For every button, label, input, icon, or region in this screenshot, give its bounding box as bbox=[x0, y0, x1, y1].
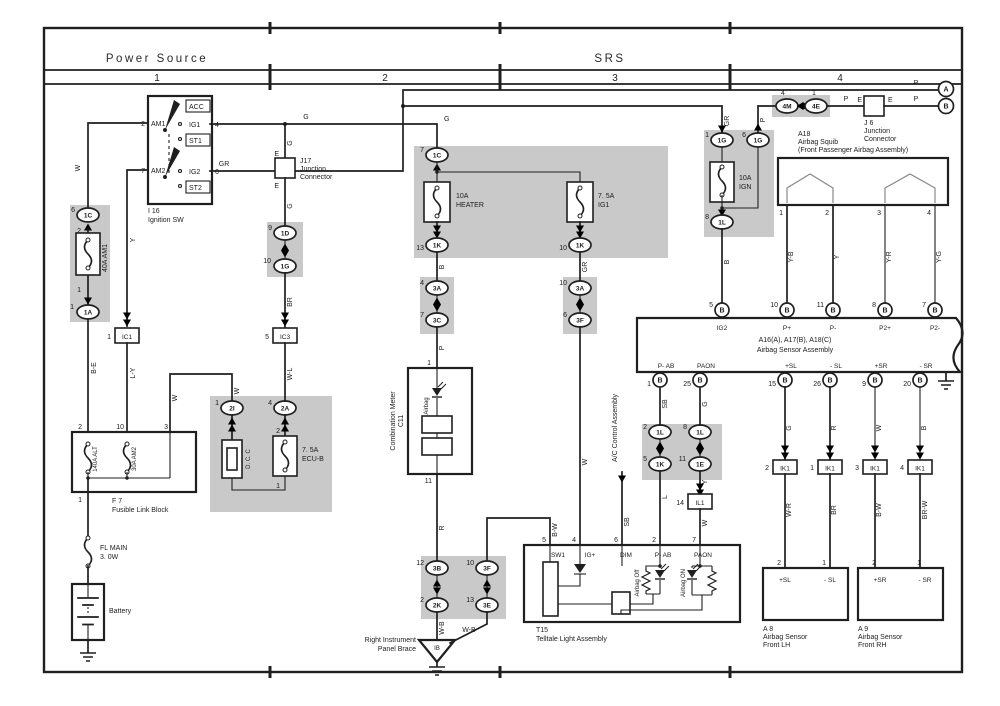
j6-junction: Junction bbox=[864, 128, 890, 135]
junction-ic3-id: IC3 bbox=[280, 334, 291, 341]
ignition-terminal-st1: ST1 bbox=[189, 138, 202, 145]
am2-feed-wire: Y bbox=[127, 170, 148, 326]
fuse-140a-alt: 140A ALT bbox=[93, 446, 99, 472]
ground-label-line2: Panel Brace bbox=[378, 646, 416, 653]
connector-3f6-id: 3F bbox=[576, 318, 584, 325]
j17-e-top: E bbox=[274, 151, 279, 158]
telltale-pin-5: 5 bbox=[542, 537, 546, 544]
combination-meter: C11 Combination Meter 1 Airbag 11 R bbox=[390, 360, 472, 561]
connector-1k13-pin: 13 bbox=[416, 245, 424, 252]
offpage-circle-b: B bbox=[943, 104, 948, 111]
connector-1l8b-pin: 8 bbox=[683, 424, 687, 431]
ignition-pin-7: 7 bbox=[141, 168, 145, 175]
j6-connector: Connector bbox=[864, 136, 897, 143]
connector-2i-pin: 1 bbox=[215, 400, 219, 407]
wire-color-b-ig2: B bbox=[724, 259, 731, 264]
wire-color-yg: Y-G bbox=[936, 251, 943, 263]
connector-4m-id: 4M bbox=[782, 104, 791, 111]
lh-id: A 8 bbox=[763, 626, 773, 633]
flb-pin-2: 2 bbox=[78, 424, 82, 431]
connector-1g1-pin: 1 bbox=[705, 132, 709, 139]
flb-id: F 7 bbox=[112, 498, 122, 505]
connector-1g6-id: 1G bbox=[754, 138, 763, 145]
sensor-pin-1: 1 bbox=[647, 381, 651, 388]
pin-b: B bbox=[782, 378, 787, 385]
ignition-pin-6: 6 bbox=[215, 169, 219, 176]
connector-1c-pin: 6 bbox=[71, 207, 75, 214]
sensor-ig2: IG2 bbox=[717, 325, 728, 332]
connector-2i-id: 2I bbox=[229, 406, 235, 413]
ignition-id: I 16 bbox=[148, 208, 160, 215]
pin-b: B bbox=[882, 308, 887, 315]
airbag-sensor-assembly: A16(A), A17(B), A18(C) Airbag Sensor Ass… bbox=[637, 302, 963, 389]
lh-name2: Front LH bbox=[763, 642, 790, 649]
wire-color-y-squib: Y bbox=[834, 254, 841, 259]
connector-1k10-id: 1K bbox=[576, 243, 585, 250]
lh-pin-1: 1 bbox=[822, 560, 826, 567]
telltale-pin-4: 4 bbox=[572, 537, 576, 544]
section-1: 1 bbox=[154, 73, 160, 84]
telltale-name: Telltale Light Assembly bbox=[536, 636, 607, 643]
connector-pair-3b-2k: 3B 12 2K 2 W-B bbox=[416, 560, 448, 640]
flb-pin-3: 3 bbox=[164, 424, 168, 431]
connector-1l2-id: 1L bbox=[656, 430, 664, 437]
sensor-pin-26: 26 bbox=[813, 381, 821, 388]
telltale-pin-6: 6 bbox=[614, 537, 618, 544]
wire-color-g2: G bbox=[444, 116, 449, 123]
junction-ik1-d-id: IK1 bbox=[915, 466, 925, 473]
telltale-pin-2: 2 bbox=[652, 537, 656, 544]
sensor-p2-plus: P2+ bbox=[879, 325, 891, 332]
wire-color-r-sl: R bbox=[831, 425, 838, 430]
wire-color-gr1: GR bbox=[219, 161, 230, 168]
wire-color-w-left: W bbox=[172, 394, 179, 401]
meter-pin-11: 11 bbox=[425, 478, 432, 485]
telltale-airbag-on-label: Airbag ON bbox=[681, 569, 687, 597]
j17-connector: Connector bbox=[300, 174, 333, 181]
sensor-p-minus: P- bbox=[830, 325, 837, 332]
connector-4e-id: 4E bbox=[812, 104, 821, 111]
battery-label: Battery bbox=[109, 608, 132, 615]
section-4: 4 bbox=[837, 73, 843, 84]
sensor-paon: PAON bbox=[697, 363, 715, 370]
sensor-pin-25: 25 bbox=[683, 381, 691, 388]
ignition-terminal-ig1: IG1 bbox=[189, 122, 200, 129]
j6-e-right: E bbox=[888, 97, 893, 104]
ignition-contact-wedges bbox=[163, 100, 182, 188]
wire-color-b-sr: B bbox=[921, 425, 928, 430]
header-power-source: Power Source bbox=[106, 53, 208, 65]
sensor-pin-9: 9 bbox=[862, 381, 866, 388]
connector-1l8b-id: 1L bbox=[696, 430, 704, 437]
j17-junction: Junction bbox=[300, 166, 326, 173]
pin-b: B bbox=[657, 378, 662, 385]
ignition-name: Ignition SW bbox=[148, 217, 184, 224]
connector-3b12-id: 3B bbox=[433, 566, 442, 573]
wire-color-p-j6-right: P bbox=[914, 96, 919, 103]
rh-sr-minus: - SR bbox=[919, 577, 932, 584]
wire-color-wr: W-R bbox=[786, 503, 793, 517]
sensor-pin-11: 11 bbox=[817, 302, 824, 309]
lh-sl-plus: +SL bbox=[779, 577, 791, 584]
connector-3a4-pin: 4 bbox=[420, 280, 424, 287]
fuse-ig1-name: IG1 bbox=[598, 202, 609, 209]
j6-id: J 6 bbox=[864, 120, 873, 127]
fuse-ecub-name: ECU-B bbox=[302, 456, 324, 463]
lh-name1: Airbag Sensor bbox=[763, 634, 808, 641]
junction-ik1-a-pin: 2 bbox=[765, 465, 769, 472]
ac-control-assembly-feed: A/C Control Assembly SB bbox=[612, 393, 631, 545]
wire-color-p-j6-left: P bbox=[844, 96, 849, 103]
ignition-pin-2: 2 bbox=[141, 121, 145, 128]
j17-e-bottom: E bbox=[274, 183, 279, 190]
wire-color-sb-ac: SB bbox=[624, 517, 631, 527]
wire-color-g-paon: G bbox=[702, 401, 709, 406]
meter-name: Combination Meter bbox=[390, 391, 397, 451]
wire-color-w-igplus: W bbox=[582, 458, 589, 465]
fl-main-label: FL MAIN bbox=[100, 545, 127, 552]
fuse-heater-name: HEATER bbox=[456, 202, 484, 209]
wire-color-g-j17-top: G bbox=[287, 140, 294, 145]
wire-color-gr-ign: GR bbox=[724, 116, 731, 127]
fl-main-rating: 3. 0W bbox=[100, 554, 119, 561]
connector-1k13-id: 1K bbox=[433, 243, 442, 250]
wire-color-b-htr: B bbox=[439, 264, 446, 269]
sensor-p-plus: P+ bbox=[783, 325, 791, 332]
squib-id: A18 bbox=[798, 131, 811, 138]
rh-pin-1: 1 bbox=[917, 560, 921, 567]
wire-color-brw: BR-W bbox=[922, 500, 929, 519]
rh-name2: Front RH bbox=[858, 642, 886, 649]
wire-color-gr-ig1: GR bbox=[582, 262, 589, 273]
junction-ik1-c-pin: 3 bbox=[855, 465, 859, 472]
pin-b: B bbox=[830, 308, 835, 315]
ignition-terminal-am1: AM1 bbox=[151, 121, 166, 128]
pin-b: B bbox=[917, 378, 922, 385]
junction-ic1: IC1 1 L-Y bbox=[107, 313, 139, 433]
squib-pin-3: 3 bbox=[877, 210, 881, 217]
wire-color-l-pab: L bbox=[662, 495, 669, 499]
ground-ib-id: IB bbox=[434, 646, 440, 652]
connector-1c-id: 1C bbox=[84, 213, 93, 220]
wire-color-g1: G bbox=[303, 114, 308, 121]
wire-color-wb-horizontal: W-B bbox=[462, 627, 476, 634]
wire-color-w-right: W bbox=[234, 387, 241, 394]
wire-color-w-am1: W bbox=[75, 164, 82, 171]
junction-ic1-pin: 1 bbox=[107, 334, 111, 341]
wire-color-yb: Y-B bbox=[788, 251, 795, 262]
connector-2a-pin: 4 bbox=[268, 400, 272, 407]
sensor-pin-10: 10 bbox=[770, 302, 778, 309]
squib-pin-1: 1 bbox=[779, 210, 783, 217]
wire-color-wl: W-L bbox=[287, 368, 294, 381]
junction-ic1-id: IC1 bbox=[122, 334, 133, 341]
connector-2a-id: 2A bbox=[281, 406, 290, 413]
fuse-ecub-rating: 7. 5A bbox=[302, 447, 319, 454]
telltale-airbag-off-label: Airbag Off bbox=[635, 569, 641, 596]
offpage-circle-a: A bbox=[943, 87, 948, 94]
telltale-igplus: IG+ bbox=[585, 552, 596, 559]
fuse-heater-rating: 10A bbox=[456, 193, 469, 200]
wire-color-p-meter: P bbox=[439, 345, 446, 350]
am1-feed-wire: W bbox=[75, 123, 148, 208]
sensor-p2-minus: P2- bbox=[930, 325, 940, 332]
telltale-pab: P- AB bbox=[655, 552, 672, 559]
j6-e-left: E bbox=[857, 97, 862, 104]
wire-color-w-paon: W bbox=[702, 519, 709, 526]
ignition-switch: 2 AM1 7 AM2 ACC IG1 4 ST1 IG2 6 ST2 I 16… bbox=[141, 96, 219, 224]
connector-1d-id: 1D bbox=[281, 231, 290, 238]
sensor-pin-7: 7 bbox=[922, 302, 926, 309]
fuse-ign-rating: 10A bbox=[739, 175, 752, 182]
wire-color-wb-vertical: W-B bbox=[439, 621, 446, 635]
connector-1k5-pin: 5 bbox=[643, 456, 647, 463]
flb-pin-1: 1 bbox=[78, 497, 82, 504]
fuse-ig1-rating: 7. 5A bbox=[598, 193, 615, 200]
wire-color-bw-sr: B-W bbox=[876, 503, 883, 517]
junction-ik1-c-id: IK1 bbox=[870, 466, 880, 473]
sensor-pin-20: 20 bbox=[903, 381, 911, 388]
telltale-sw1: SW1 bbox=[551, 552, 565, 559]
fuse-ign-name: IGN bbox=[739, 184, 751, 191]
airbag-squib: A18 Airbag Squib (Front Passenger Airbag… bbox=[778, 131, 948, 303]
connector-4e-pin: 1 bbox=[812, 90, 816, 97]
telltale-light-assembly: 5 4 6 2 7 SW1 IG+ DIM P- AB PAON Airbag … bbox=[524, 537, 740, 643]
telltale-pin-7: 7 bbox=[692, 537, 696, 544]
pin-b: B bbox=[932, 308, 937, 315]
meter-airbag-lamp-label: Airbag bbox=[424, 397, 430, 414]
connector-1d-pin: 9 bbox=[268, 225, 272, 232]
ground-right-instrument-panel-brace: IB Right Instrument Panel Brace bbox=[365, 637, 455, 675]
connector-3e13-id: 3E bbox=[483, 603, 492, 610]
wire-color-p-ign: P bbox=[760, 117, 767, 122]
sensor-sr-plus: +SR bbox=[875, 363, 888, 370]
sensor-assembly-name: Airbag Sensor Assembly bbox=[757, 347, 834, 354]
connector-3f6-pin: 6 bbox=[563, 312, 567, 319]
connector-3c7-id: 3C bbox=[433, 318, 442, 325]
rh-id: A 9 bbox=[858, 626, 868, 633]
squib-name: Airbag Squib bbox=[798, 139, 838, 146]
sensor-pin-15: 15 bbox=[768, 381, 776, 388]
ignition-terminal-st2: ST2 bbox=[189, 185, 202, 192]
section-2: 2 bbox=[382, 73, 388, 84]
fusible-link-block: 2 10 3 140A ALT 30A AM2 1 F 7 Fusible Li… bbox=[72, 424, 196, 538]
wire-color-br-sl: BR bbox=[831, 505, 838, 515]
junction-ik1-b-pin: 1 bbox=[810, 465, 814, 472]
connector-3a10-id: 3A bbox=[576, 286, 585, 293]
srs-wiring-diagram-page: Power Source SRS 1 2 3 4 2 AM1 7 AM2 ACC… bbox=[0, 0, 1000, 706]
connector-1k5-id: 1K bbox=[656, 462, 665, 469]
flb-pin-10: 10 bbox=[116, 424, 124, 431]
connector-1c7-pin: 7 bbox=[420, 147, 424, 154]
connector-3a10-pin: 10 bbox=[559, 280, 567, 287]
rh-pin-2: 2 bbox=[872, 560, 876, 567]
wire-color-y-am2: Y bbox=[130, 237, 137, 242]
dcc-label: D. C. C bbox=[246, 449, 252, 469]
sensor-pab: P- AB bbox=[658, 363, 675, 370]
squib-pin-2: 2 bbox=[825, 210, 829, 217]
pin-b: B bbox=[872, 378, 877, 385]
connector-3e13-pin: 13 bbox=[466, 597, 474, 604]
fuse-am1-rating: 40A AM1 bbox=[102, 244, 109, 272]
wire-color-r-meter: R bbox=[439, 525, 446, 530]
connector-1g10-id: 1G bbox=[281, 264, 290, 271]
lh-sl-minus: - SL bbox=[824, 577, 836, 584]
front-sensor-chains: G R W B IK1 2 IK1 1 IK1 3 IK1 4 W-R BR B… bbox=[765, 387, 932, 568]
wire-color-sb-pab: SB bbox=[662, 399, 669, 409]
airbag-sensor-front-rh: 2 1 +SR - SR A 9 Airbag Sensor Front RH bbox=[858, 560, 943, 649]
connector-3a4-id: 3A bbox=[433, 286, 442, 293]
wire-color-bw-sw1: B-W bbox=[552, 523, 559, 537]
connector-3f10-pin: 10 bbox=[466, 560, 474, 567]
sensor-sl-minus: - SL bbox=[830, 363, 842, 370]
connector-1l2-pin: 2 bbox=[643, 424, 647, 431]
connector-1e11-id: 1E bbox=[696, 462, 705, 469]
sensor-sr-minus: - SR bbox=[920, 363, 933, 370]
header-srs: SRS bbox=[594, 53, 625, 65]
ignition-terminal-ig2: IG2 bbox=[189, 169, 200, 176]
connector-3c7-pin: 7 bbox=[420, 312, 424, 319]
ig1-g-wire: G G bbox=[210, 114, 449, 148]
meter-id: C11 bbox=[398, 415, 405, 427]
wire-color-g-sl: G bbox=[786, 425, 793, 430]
pin-b: B bbox=[719, 308, 724, 315]
connector-1k10-pin: 10 bbox=[559, 245, 567, 252]
fuse-am1-pin1: 1 bbox=[77, 287, 81, 294]
ground-label-line1: Right Instrument bbox=[365, 637, 416, 644]
j17-id: J17 bbox=[300, 158, 311, 165]
fuse-ecub-pin2: 2 bbox=[276, 428, 280, 435]
junction-ik1-b-id: IK1 bbox=[825, 466, 835, 473]
fuse-30a-am2: 30A AM2 bbox=[132, 446, 138, 471]
fl-main-fusible-link: FL MAIN 3. 0W bbox=[85, 536, 128, 584]
connector-1c7-id: 1C bbox=[433, 153, 442, 160]
connector-1a-id: 1A bbox=[84, 310, 93, 317]
connector-1g10-pin: 10 bbox=[263, 258, 271, 265]
junction-ik1-d-pin: 4 bbox=[900, 465, 904, 472]
section-3: 3 bbox=[612, 73, 618, 84]
sensor-sl-plus: +SL bbox=[785, 363, 797, 370]
junction-il1-pin: 14 bbox=[676, 500, 684, 507]
connector-4m-pin: 4 bbox=[781, 90, 785, 97]
telltale-id: T15 bbox=[536, 627, 548, 634]
lh-pin-2: 2 bbox=[777, 560, 781, 567]
pin-b: B bbox=[827, 378, 832, 385]
wire-color-br: BR bbox=[287, 297, 294, 307]
fuse-ecub-pin1: 1 bbox=[276, 483, 280, 490]
connector-1l8-pin: 8 bbox=[705, 214, 709, 221]
ignition-terminal-acc: ACC bbox=[189, 104, 204, 111]
battery: Battery bbox=[72, 584, 132, 661]
rh-name1: Airbag Sensor bbox=[858, 634, 903, 641]
pin-b: B bbox=[697, 378, 702, 385]
connector-3f10-id: 3F bbox=[483, 566, 491, 573]
rh-sr-plus: +SR bbox=[874, 577, 887, 584]
sensor-pin-5: 5 bbox=[709, 302, 713, 309]
flb-name: Fusible Link Block bbox=[112, 507, 169, 514]
sensor-bottom-pins: P- AB PAON +SL - SL +SR - SR B 1 B 25 B … bbox=[647, 363, 933, 388]
squib-assembly: (Front Passenger Airbag Assembly) bbox=[798, 147, 908, 154]
wire-color-p-a: P bbox=[914, 80, 919, 87]
connector-1g1-id: 1G bbox=[718, 138, 727, 145]
wire-color-g-j17-bottom: G bbox=[287, 203, 294, 208]
ac-control-assembly-label: A/C Control Assembly bbox=[612, 393, 619, 462]
connector-2k2-id: 2K bbox=[433, 603, 442, 610]
connector-3b12-pin: 12 bbox=[416, 560, 424, 567]
meter-pin-1: 1 bbox=[427, 360, 431, 367]
ignition-pin-4: 4 bbox=[215, 122, 219, 129]
junction-ik1-a-id: IK1 bbox=[780, 466, 790, 473]
connector-1a-pin: 1 bbox=[70, 304, 74, 311]
squib-pin-4: 4 bbox=[927, 210, 931, 217]
wire-color-ly: L-Y bbox=[130, 367, 137, 378]
ignition-terminal-am2: AM2 bbox=[151, 168, 166, 175]
telltale-paon: PAON bbox=[694, 552, 712, 559]
junction-ic3-pin: 5 bbox=[265, 334, 269, 341]
sensor-pin-8: 8 bbox=[872, 302, 876, 309]
wire-color-w-sr: W bbox=[876, 424, 883, 431]
connector-1e11-pin: 11 bbox=[679, 456, 686, 463]
connector-2k2-pin: 2 bbox=[420, 597, 424, 604]
sensor-assembly-id: A16(A), A17(B), A18(C) bbox=[759, 337, 832, 344]
wire-color-yr: Y-R bbox=[886, 251, 893, 262]
wiring-diagram-canvas: Power Source SRS 1 2 3 4 2 AM1 7 AM2 ACC… bbox=[0, 0, 1000, 706]
connector-1l8-id: 1L bbox=[718, 220, 726, 227]
airbag-sensor-front-lh: 2 1 +SL - SL A 8 Airbag Sensor Front LH bbox=[763, 560, 848, 649]
junction-il1-id: IL1 bbox=[695, 500, 704, 507]
connector-1g6-pin: 6 bbox=[742, 132, 746, 139]
wire-color-be: B-E bbox=[91, 362, 98, 374]
pin-b: B bbox=[784, 308, 789, 315]
